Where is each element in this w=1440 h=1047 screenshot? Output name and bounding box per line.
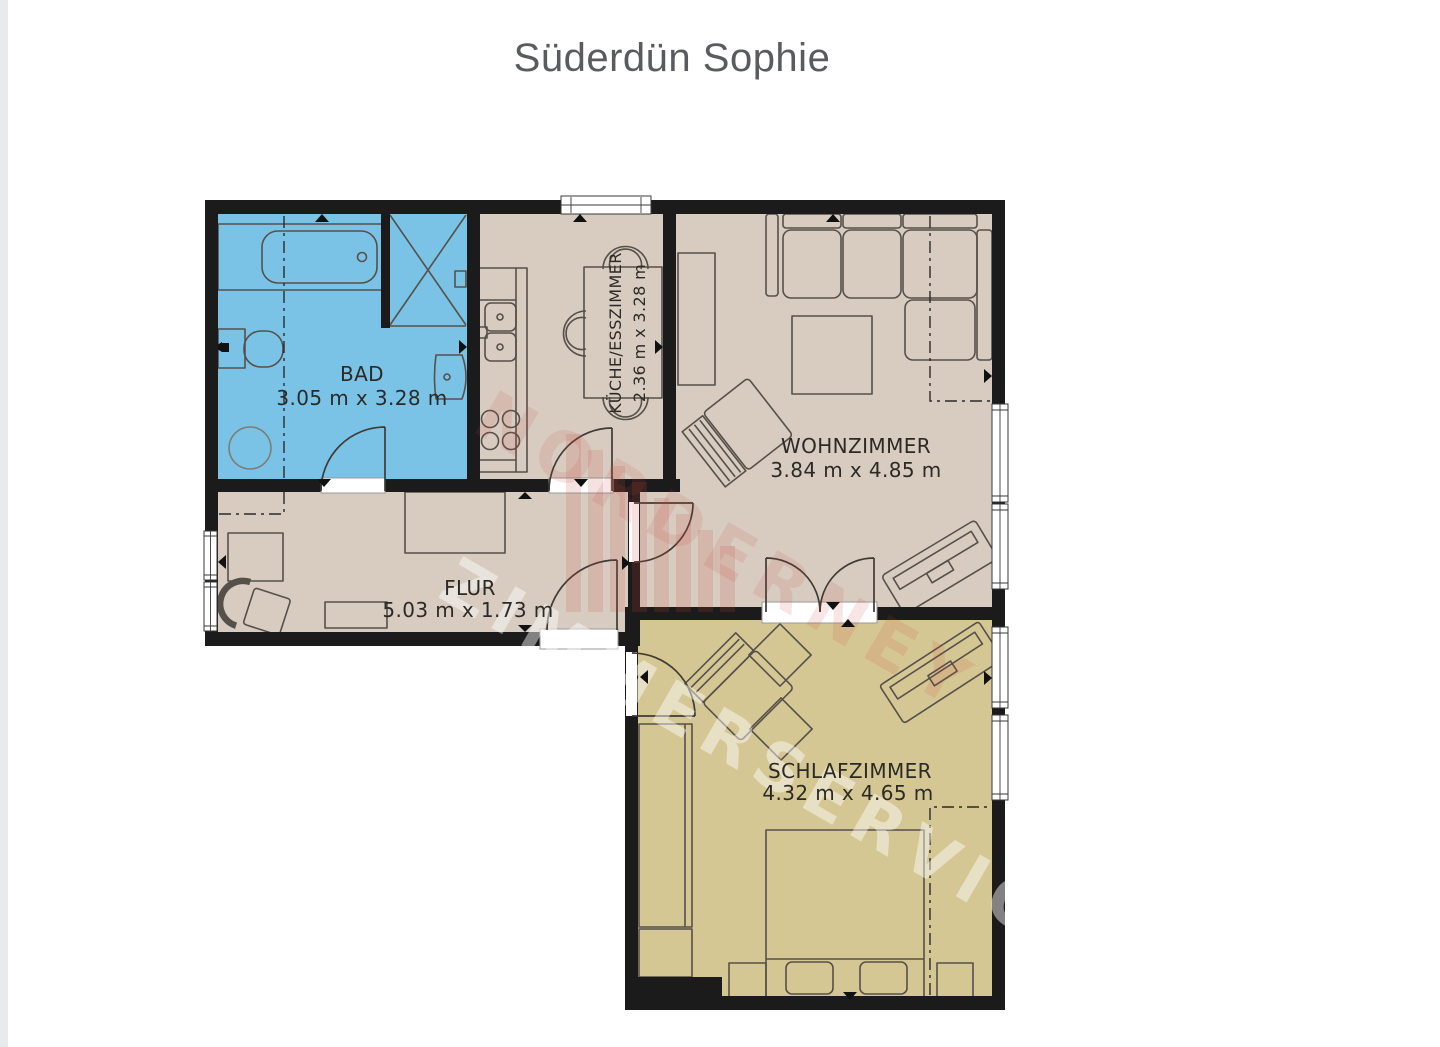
room-name: SCHLAFZIMMER [768, 759, 932, 783]
room-dimensions: 2.36 m x 3.28 m [630, 264, 649, 402]
wohnzimmer-window [992, 504, 1008, 589]
flur-window [204, 582, 217, 631]
label-schlafzimmer: SCHLAFZIMMER 4.32 m x 4.65 m [762, 759, 933, 805]
kueche-window [561, 196, 651, 214]
room-name: FLUR [444, 576, 496, 600]
schlafzimmer-window [992, 715, 1008, 800]
room-name: BAD [340, 362, 384, 386]
room-name: KÜCHE/ESSZIMMER [606, 252, 625, 413]
wall-segment [663, 200, 676, 492]
bad-door-threshold [321, 478, 385, 493]
schlafzimmer-window [992, 627, 1008, 708]
radiator-icon [222, 343, 229, 352]
label-wohnzimmer: WOHNZIMMER 3.84 m x 4.85 m [770, 434, 941, 482]
wall-segment [625, 977, 722, 1010]
room-dimensions: 5.03 m x 1.73 m [382, 598, 553, 622]
shower-partition-wall [381, 214, 390, 328]
room-name: WOHNZIMMER [781, 434, 931, 458]
room-dimensions: 4.32 m x 4.65 m [762, 781, 933, 805]
room-dimensions: 3.84 m x 4.85 m [770, 458, 941, 482]
floor-plan: NORDERNEY ZIMMERSERVICE BAD 3.05 m x 3.2… [0, 0, 1440, 1047]
bad-floor [205, 200, 480, 492]
room-dimensions: 3.05 m x 3.28 m [276, 386, 447, 410]
wohnzimmer-window [992, 404, 1008, 502]
flur-window [204, 531, 217, 580]
